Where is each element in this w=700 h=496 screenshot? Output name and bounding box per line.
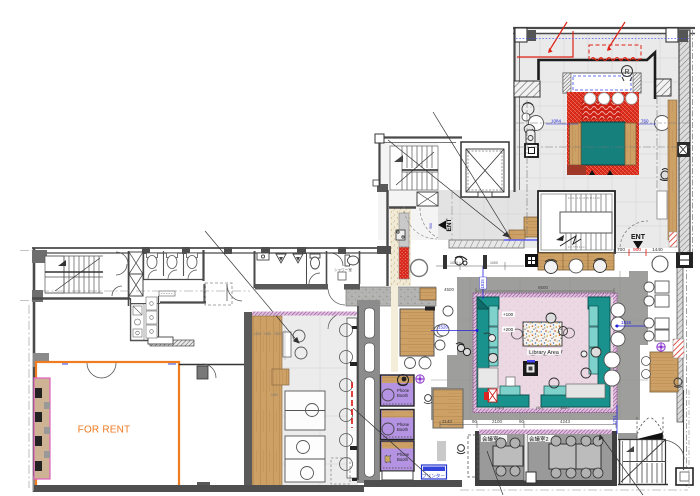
svg-text:1084: 1084	[551, 119, 562, 124]
svg-text:プリンター: プリンター	[422, 473, 445, 480]
svg-text:10 11 12 13 14 15 16 17 18: 10 11 12 13 14 15 16 17 18	[568, 196, 600, 200]
svg-text:(90): (90)	[536, 406, 543, 410]
svg-text:+100: +100	[503, 312, 514, 317]
svg-text:1520: 1520	[438, 325, 449, 330]
svg-text:1000: 1000	[490, 261, 498, 265]
svg-text:1815: 1815	[480, 279, 485, 289]
svg-text:Booth: Booth	[397, 427, 409, 432]
svg-text:+200: +200	[503, 327, 514, 332]
svg-text:Library Area: Library Area	[529, 350, 560, 356]
svg-text:900: 900	[429, 223, 433, 229]
svg-text:700: 700	[617, 247, 625, 253]
svg-text:FOR RENT: FOR RENT	[78, 425, 131, 436]
svg-text:4243: 4243	[560, 419, 571, 424]
svg-text:1400: 1400	[271, 393, 278, 397]
svg-text:R: R	[624, 69, 629, 76]
svg-text:1000: 1000	[450, 261, 458, 265]
svg-text:90: 90	[519, 419, 525, 424]
svg-text:90: 90	[472, 419, 478, 424]
svg-text:ENT: ENT	[631, 234, 646, 241]
svg-text:シャワー室: シャワー室	[334, 267, 352, 272]
svg-text:9 8 7 6 5 4 3 2 1: 9 8 7 6 5 4 3 2 1	[568, 245, 587, 249]
svg-text:Booth: Booth	[397, 393, 409, 398]
svg-text:1300: 1300	[254, 332, 261, 336]
svg-text:1440: 1440	[652, 247, 663, 253]
svg-text:900: 900	[633, 247, 641, 253]
svg-text:1300: 1300	[274, 332, 281, 336]
svg-text:(745): (745)	[495, 406, 505, 410]
svg-text:3460: 3460	[560, 406, 568, 410]
svg-text:Booth: Booth	[397, 457, 409, 462]
svg-text:760: 760	[641, 119, 649, 124]
svg-text:3140: 3140	[442, 419, 453, 424]
svg-text:1300: 1300	[264, 332, 271, 336]
svg-text:2100: 2100	[492, 419, 503, 424]
svg-text:4500: 4500	[444, 287, 455, 292]
svg-text:1751: 1751	[612, 415, 617, 425]
svg-text:1815: 1815	[621, 320, 632, 325]
svg-text:会議室2: 会議室2	[529, 435, 549, 443]
svg-text:6500: 6500	[538, 285, 549, 290]
